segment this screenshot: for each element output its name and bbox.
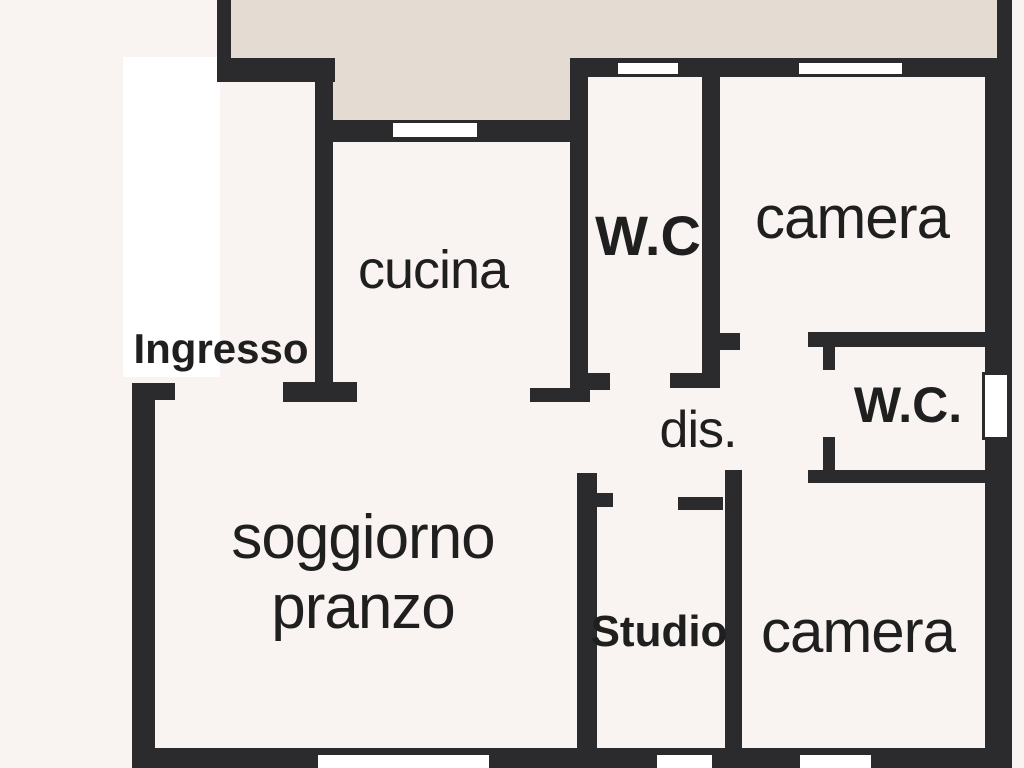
room-label-camera-top: camera: [755, 188, 949, 248]
wc-right-window: [982, 372, 1010, 440]
cucina-window: [393, 123, 477, 137]
floor-plan: IngressocucinaW.Ccameradis.W.C.soggiorno…: [0, 0, 1024, 768]
camera-bottom-window: [800, 755, 871, 768]
room-label-camera-bottom: camera: [761, 602, 955, 662]
room-label-cucina: cucina: [358, 243, 508, 297]
left-exterior-wall: [132, 383, 155, 768]
cucina-top-wall: [217, 58, 335, 82]
right-wall-upper: [997, 0, 1012, 60]
studio-door-stub: [595, 493, 613, 507]
camera2-left-wall: [725, 470, 742, 768]
room-label-studio: Studio: [591, 610, 728, 654]
cucina-wc-divider-wall: [570, 58, 588, 393]
wc-door-stub: [588, 373, 610, 390]
studio-top-stub: [678, 497, 723, 510]
camera-top-window: [799, 63, 902, 74]
wc2-top-wall: [808, 332, 988, 347]
cucina-left-wall: [315, 82, 333, 402]
wc2-door-stub-top: [823, 347, 835, 370]
terrace-area-left: [231, 0, 335, 62]
room-label-soggiorno-line1: soggiorno: [231, 507, 494, 569]
terrace-left-wall: [217, 0, 231, 60]
soggiorno-top-stub-left: [283, 382, 357, 402]
room-label-ingresso: Ingresso: [133, 328, 308, 370]
room-label-wc-top: W.C: [595, 208, 701, 264]
room-label-wc-right: W.C.: [854, 380, 962, 430]
wc2-door-stub-bottom: [823, 437, 835, 470]
wc-top-window: [618, 63, 678, 74]
camera2-top-wall: [808, 470, 988, 483]
wc-camera-divider-wall: [702, 77, 720, 388]
terrace-area-mid: [333, 0, 585, 122]
studio-window: [657, 755, 712, 768]
bottom-exterior-wall: [132, 748, 1012, 768]
soggiorno-top-stub-right: [530, 388, 590, 402]
soggiorno-window: [318, 755, 489, 768]
room-label-dis: dis.: [660, 404, 737, 456]
terrace-area-right: [585, 0, 997, 60]
room-label-soggiorno-line2: pranzo: [271, 577, 455, 639]
camera-door-stub: [720, 333, 740, 350]
